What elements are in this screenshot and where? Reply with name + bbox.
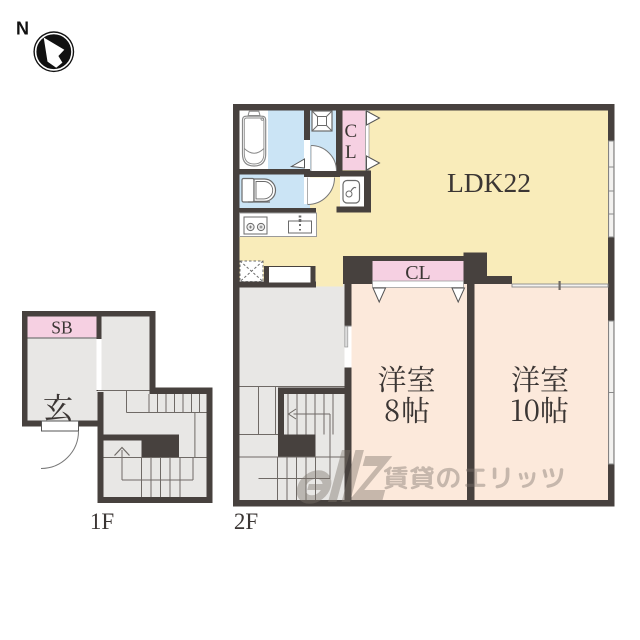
svg-text:C: C [344, 121, 357, 142]
svg-text:1F: 1F [90, 509, 114, 534]
svg-text:2F: 2F [234, 509, 258, 534]
svg-text:L: L [345, 142, 357, 163]
svg-text:CL: CL [405, 262, 431, 284]
svg-text:SB: SB [51, 318, 72, 338]
svg-text:N: N [16, 19, 29, 39]
svg-text:LDK22: LDK22 [447, 167, 531, 198]
